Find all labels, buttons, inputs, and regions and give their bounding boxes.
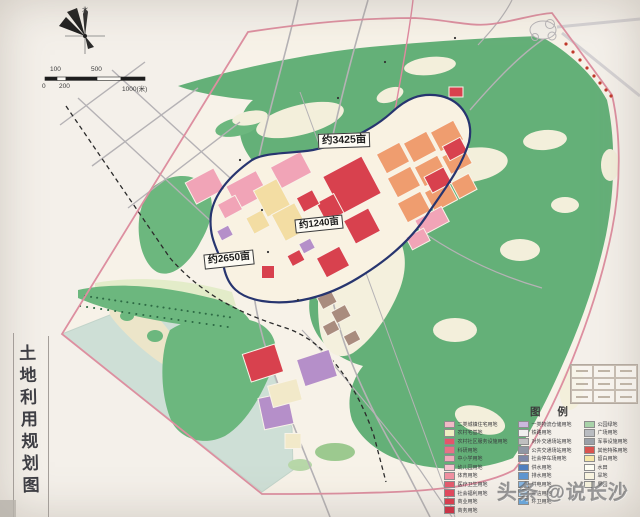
legend-color-chip xyxy=(444,489,455,497)
legend-color-chip xyxy=(444,429,455,437)
legend-color-chip xyxy=(584,446,595,454)
boundary-marker-dot xyxy=(609,94,612,97)
compass-north-label: 北 xyxy=(82,5,88,14)
legend-color-chip xyxy=(444,464,455,472)
scale-label-500: 500 xyxy=(91,66,102,73)
legend-color-chip xyxy=(584,429,595,437)
legend-item-label: 商务用地 xyxy=(458,507,478,514)
legend-color-chip xyxy=(444,446,455,454)
boundary-marker-dot xyxy=(564,42,567,45)
legend-color-chip xyxy=(444,455,455,463)
legend-item-label: 铁路用地 xyxy=(532,429,552,436)
legend-color-chip xyxy=(444,498,455,506)
page-title: 土地利用规划图 xyxy=(13,344,42,510)
legend-color-chip xyxy=(444,438,455,446)
boundary-marker-dot xyxy=(585,66,588,69)
legend-item: 商务用地 xyxy=(444,506,508,515)
legend-color-chip xyxy=(444,506,455,514)
legend-item-label: 科研用地 xyxy=(458,447,478,454)
legend-title: 图 例 xyxy=(530,404,575,419)
road-node-dot xyxy=(384,61,386,63)
boundary-marker-dot xyxy=(604,88,607,91)
road-node-dot xyxy=(297,299,299,301)
road-node-dot xyxy=(454,37,456,39)
legend-color-chip xyxy=(518,429,529,437)
scale-label-100: 100 xyxy=(50,66,61,73)
legend-item: 留白用地 xyxy=(584,454,628,463)
legend-item-label: 商业用地 xyxy=(458,498,478,505)
legend-item-label: 供水用地 xyxy=(532,464,552,471)
legend-item: 广场用地 xyxy=(584,429,628,438)
parcel xyxy=(285,434,301,449)
legend-color-chip xyxy=(444,472,455,480)
parcel xyxy=(449,87,463,97)
legend-color-chip xyxy=(584,464,595,472)
legend-color-chip xyxy=(518,464,529,472)
road-node-dot xyxy=(337,97,339,99)
legend-color-chip xyxy=(444,481,455,489)
legend-item-label: 幼儿园用地 xyxy=(458,464,483,471)
boundary-marker-dot xyxy=(571,50,574,53)
forest-patch xyxy=(315,443,355,461)
area-label-3425: 约3425亩 xyxy=(318,132,371,149)
scale-label-1000m: 1000(米) xyxy=(122,83,147,93)
legend-item-label: 农村社区服务设施用地 xyxy=(458,438,508,445)
parcel xyxy=(262,266,275,279)
legend-color-chip xyxy=(518,446,529,454)
legend-item-label: 广场用地 xyxy=(598,429,618,436)
photo-corner-shade xyxy=(0,500,16,517)
watermark: 头条 @说长沙 xyxy=(497,476,629,505)
boundary-marker-dot xyxy=(592,74,595,77)
road-node-dot xyxy=(267,251,269,253)
boundary-marker-dot xyxy=(598,81,601,84)
legend-item: 其他特殊用地 xyxy=(584,446,628,455)
island-green-patch xyxy=(147,330,163,342)
legend-item: 社会停车场用地 xyxy=(518,454,572,463)
scale-label-0: 0 xyxy=(42,83,46,90)
legend-item: 二类城镇住宅用地 xyxy=(444,420,508,429)
title-block-table xyxy=(570,364,638,404)
legend-item-label: 军事设施用地 xyxy=(598,438,628,445)
legend-color-chip xyxy=(444,421,455,429)
legend-item-label: 公园绿地 xyxy=(598,421,618,428)
scale-bar xyxy=(45,77,145,80)
legend-item: 铁路用地 xyxy=(518,429,572,438)
title-strip-line-right xyxy=(48,336,49,517)
road-node-dot xyxy=(239,159,241,161)
legend-item-label: 二类城镇住宅用地 xyxy=(458,421,498,428)
planning-map-photo: 北 100 500 0 200 1000(米) 约3425亩 约1240亩 约2… xyxy=(0,0,640,517)
legend-item-label: 医疗卫生用地 xyxy=(458,481,488,488)
scale-label-200: 200 xyxy=(59,83,70,90)
legend-item: 公园绿地 xyxy=(584,420,628,429)
legend-color-chip xyxy=(584,421,595,429)
legend-item-label: 中小学用地 xyxy=(458,455,483,462)
legend-item-label: 公共交通场站用地 xyxy=(532,447,572,454)
legend-item-label: 一类物流仓储用地 xyxy=(532,421,572,428)
legend-color-chip xyxy=(584,455,595,463)
legend-item: 幼儿园用地 xyxy=(444,463,508,472)
legend-item: 农村社区服务设施用地 xyxy=(444,437,508,446)
legend-item: 水田 xyxy=(584,463,628,472)
legend-item-label: 留白用地 xyxy=(598,455,618,462)
legend-item-label: 社会停车场用地 xyxy=(532,455,567,462)
legend-color-chip xyxy=(518,438,529,446)
legend-color-chip xyxy=(584,438,595,446)
legend-item: 中小学用地 xyxy=(444,454,508,463)
legend-item-label: 水田 xyxy=(598,464,608,471)
boundary-marker-dot xyxy=(578,58,581,61)
legend-color-chip xyxy=(518,421,529,429)
legend-item-label: 其他特殊用地 xyxy=(598,447,628,454)
legend-item: 一类物流仓储用地 xyxy=(518,420,572,429)
legend-item-label: 农村宅基地 xyxy=(458,429,483,436)
legend-item: 公共交通场站用地 xyxy=(518,446,572,455)
legend-item: 农村宅基地 xyxy=(444,429,508,438)
legend-item: 对外交通场站用地 xyxy=(518,437,572,446)
legend-item-label: 社会福利用地 xyxy=(458,490,488,497)
legend-item-label: 体育用地 xyxy=(458,472,478,479)
legend-color-chip xyxy=(518,455,529,463)
legend-item: 科研用地 xyxy=(444,446,508,455)
road-node-dot xyxy=(261,209,263,211)
legend-item-label: 对外交通场站用地 xyxy=(532,438,572,445)
legend-item: 供水用地 xyxy=(518,463,572,472)
legend-item: 军事设施用地 xyxy=(584,437,628,446)
